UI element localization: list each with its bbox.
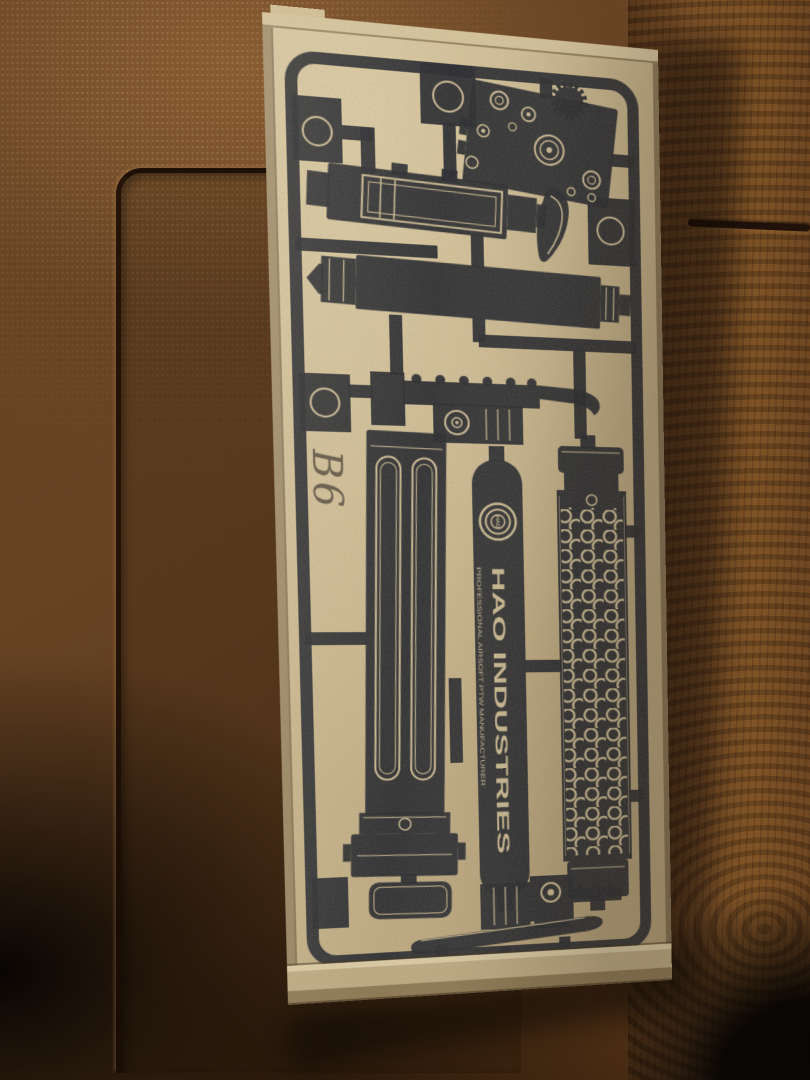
kraft-texture — [262, 12, 672, 1005]
photo-scene: HAO HAO INDUSTRIES PROFESSIONAL AIRSOFT … — [0, 0, 810, 1080]
box-print-artwork: HAO HAO INDUSTRIES PROFESSIONAL AIRSOFT … — [262, 12, 672, 1005]
cardboard-box: HAO HAO INDUSTRIES PROFESSIONAL AIRSOFT … — [262, 12, 672, 1005]
